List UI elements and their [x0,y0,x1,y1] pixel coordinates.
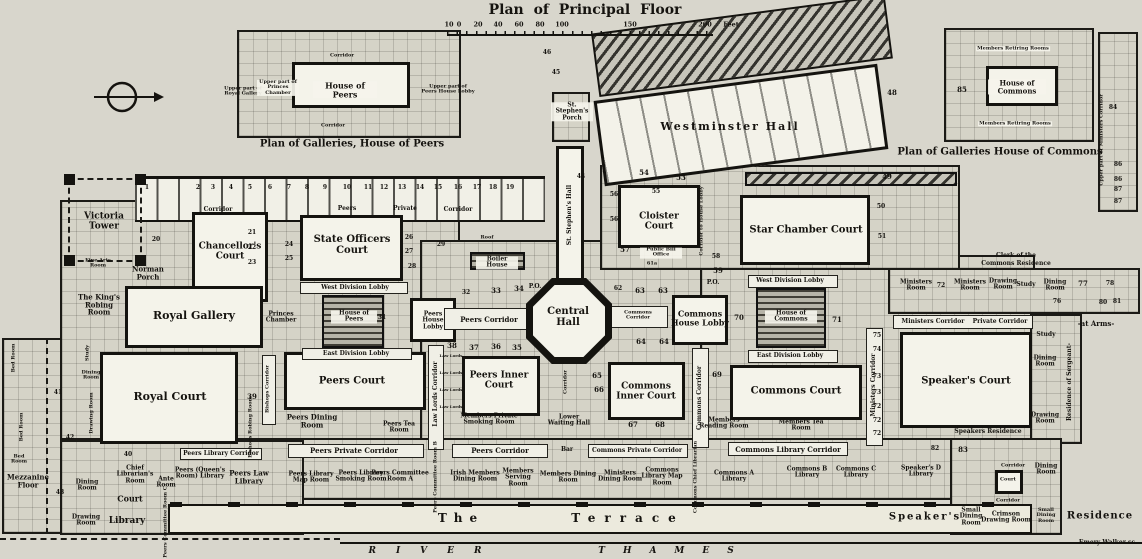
room-label: Members Tea Room [776,420,826,433]
room-label: 6 [268,185,272,191]
room-label: 41 [54,390,62,396]
terrace-label-the: The [438,511,484,525]
room-label: Dining Room [1031,464,1061,477]
room-label: 10 [343,185,351,191]
room-label: Members Serving Room [495,468,541,487]
room-label: 64 [636,338,646,346]
room-label: 87 [1114,187,1122,193]
room-label: Irish Members Dining Room [449,471,501,484]
room-label: Peers Library Corridor [183,451,259,457]
room-label: Private Corridor [973,319,1028,325]
scale-tick-label: 40 [493,21,502,28]
room-label: Court [117,495,142,504]
room-label: Commons B Library [778,467,836,480]
room-label: St. Stephen's Porch [551,102,593,121]
room-label: Upper part of Peers House Lobby [421,85,475,96]
room-label: 17 [473,185,481,191]
room-label: 11 [364,185,372,191]
room-label: 13 [398,185,406,191]
room-label: 56 [610,192,618,198]
room-label: Dining Room [1038,280,1072,293]
room-label: 2 [196,185,200,191]
room-label: Mezzanine Floor [4,473,52,488]
room-label: 81 [1113,299,1121,305]
room-label: Corridor to House Lobby [699,186,704,255]
room-label: 31 [378,315,386,321]
room-label: Corridor [444,207,473,213]
room-label: Peers House Lobby [413,311,453,330]
scale-tick-label: Feet [723,21,739,28]
room-label: Commons A Library [705,471,763,484]
room-label: 78 [1106,281,1114,287]
room-label: Commons Private Corridor [592,448,682,454]
river-wall-line [340,542,1142,544]
room-label: Corridor [996,498,1020,503]
room-label: 63 [658,287,668,295]
room-label: Dining Room [1028,356,1062,369]
terrace-label-terrace: Terrace [571,511,685,525]
room-label: Peers Private Corridor [310,447,398,455]
room-label: 44 [577,174,585,180]
room-label: 70 [734,314,744,322]
room-label: 72 [937,283,945,289]
room-label: 21 [248,230,256,236]
room-label: Corridor [1001,463,1025,468]
room-label: Commons Chief Librarian [693,441,698,513]
room-label: 5 [248,185,252,191]
room-label: 74 [873,347,881,353]
room-label: 40 [124,452,132,458]
room-label: Court [1000,477,1016,482]
room-label: Commons Corridor [618,311,658,322]
room-label: West Division Lobby [756,278,824,284]
room-label: Emery Walker sc. [1079,540,1137,546]
room-label: 38 [447,342,457,350]
room-label: 53 [676,174,686,182]
room-label: Peers Corridor [460,316,518,324]
room-label: Peers Law Library [219,469,279,484]
room-label: 25 [285,256,293,262]
room-label: 67 [628,421,638,429]
room-label: Star Chamber Court [749,226,862,237]
room-label: Corridor [204,207,233,213]
room-label: Ministers Corridor [871,354,877,417]
room-label: Commons Library Corridor [735,446,841,454]
room-label: Speaker's D Library [892,466,950,479]
room-label: 71 [832,316,842,324]
floor-plan-canvas: Plan of Principal Floor Plan of Gallerie… [0,0,1142,559]
room-label: Upper part of Ministers Corridor [1099,94,1104,186]
room-label: Study [85,345,90,361]
room-label: 14 [416,185,424,191]
room-label: House of Commons [988,79,1046,94]
room-label: 76 [1053,299,1061,305]
room-label: 1 [145,185,149,191]
room-label: 87 [1114,199,1122,205]
scale-tick-label: 10 [444,21,453,28]
room-label: 56 [610,217,618,223]
room-label: Norman Porch [127,265,169,280]
room-label: 69 [712,371,722,379]
room-label: 48 [887,89,897,97]
room-label: Study [1036,332,1055,338]
room-label: 68 [655,421,665,429]
room-label: Central Hall [542,307,594,329]
scale-tick-label: 20 [473,21,482,28]
room-label: Princes Chamber [261,312,301,325]
room-label: 58 [712,254,720,260]
room-label: Crimson Drawing Room [980,512,1032,525]
inset-peers-caption: Plan of Galleries, House of Peers [260,139,444,150]
scale-bar [447,31,713,36]
room-label: Bishops Corridor [265,365,270,413]
room-label: 28 [408,264,416,270]
room-label: Clerk of the [996,253,1036,259]
room-label: 43 [56,490,64,496]
room-label: 32 [462,290,470,296]
room-label: Small Dining Room [1028,508,1064,524]
room-label: Members Retiring Rooms [978,121,1052,126]
room-label: 37 [469,344,479,352]
room-label: 64 [659,338,669,346]
room-label: 42 [66,435,74,441]
room-label: The King's Robing Room [76,294,122,317]
room-label: 65 [592,372,602,380]
room-label: 57 [620,246,630,254]
room-label: Peers Inner Court [464,371,534,390]
river-label-river: RIVER [368,546,501,556]
room-label: East Division Lobby [757,353,823,359]
room-label: Corridor [563,370,568,394]
room-label: Upper part of Princes Chamber [257,80,299,96]
scale-tick-label: 80 [535,21,544,28]
room-label: 26 [405,235,413,241]
room-label: 49 [882,173,892,181]
room-label: 62 [614,286,622,292]
tower-corner [64,255,75,266]
room-label: West Division Lobby [321,285,389,291]
room-label: St. Stephen's Hall [567,185,573,245]
room-label: Peers Committee Room A [371,471,429,484]
room-label: Royal Gallery [153,310,235,322]
room-label: Bishops Robing Room [248,396,253,458]
room-label: 18 [489,185,497,191]
room-label: Private [393,206,417,212]
room-label: P.O. [707,280,720,286]
room-label: Lower Waiting Hall [547,415,591,428]
room-label: Peers Court [319,377,385,388]
room-label: Law Lords [438,388,464,392]
room-label: Commons House Lobby [671,309,729,326]
room-label: Drawing Room [66,515,106,528]
room-label: Victoria Tower [74,212,134,231]
room-label: 16 [454,185,462,191]
scale-tick-label: 100 [555,21,569,28]
room-label: Speaker's Court [921,377,1011,388]
room-label: Members Dining Room [538,472,598,485]
shore-dashed-line [0,538,340,540]
room-label: Drawing Room [1025,413,1065,426]
room-label: 46 [543,50,551,56]
room-label: 80 [1099,300,1107,306]
room-label: House of Peers [313,81,377,98]
room-label: Peers Tea Room [375,422,423,435]
room-label: 4 [229,185,233,191]
room-label: 12 [380,185,388,191]
room-label: Members Retiring Rooms [976,46,1050,51]
room-label: Bar [561,447,573,453]
room-label: 50 [877,204,885,210]
room-label: Members Private Smoking Room [460,414,518,427]
room-label: -at Arms- [1078,320,1114,328]
room-label: Dining Room [70,480,104,493]
room-label: Residence of Sergeant- [1067,343,1073,421]
room-label: Chancellor's Court [194,242,266,261]
room-label: Commons Library Map Room [634,467,690,486]
room-label: State Officers Court [306,235,398,257]
room-label: 19 [506,185,514,191]
room-label: 55 [652,189,660,195]
room-label: 54 [639,169,649,177]
room-label: East Division Lobby [323,351,389,357]
room-label: Ministers Room [894,280,938,293]
room-label: Peers Library Map Room [283,472,339,485]
room-label: Corridor [321,123,345,128]
room-label: 29 [437,242,445,248]
room-label: 86 [1114,177,1122,183]
room-label: Peers [338,206,357,212]
room-label: 75 [873,333,881,339]
room-label: Royal Court [134,391,207,403]
room-label: 27 [405,249,413,255]
room-label: 34 [514,285,524,293]
room-label: 61a [647,261,657,266]
room-label: Peers Committee Room B [433,441,438,513]
room-label: 86 [1114,162,1122,168]
room-label: 83 [958,446,968,454]
room-label: 20 [152,237,160,243]
room-label: 59 [713,267,723,275]
tower-corner [64,174,75,185]
room-label: Fine Arts Room [78,259,118,270]
page-title: Plan of Principal Floor [489,2,682,18]
room-label: Law Lords [438,371,464,375]
room-label: Bed Room [6,455,32,466]
room-label: 7 [287,185,291,191]
room-label: Dining Room [76,371,106,382]
compass-rose [92,72,164,122]
room-label: Bed Room [19,413,24,442]
room-label: 33 [491,287,501,295]
room-label: 51 [878,234,886,240]
room-label: P.O. [529,284,542,290]
room-label: Commons Court [751,387,842,398]
scale-tick-label: 200 [698,21,712,28]
room-label: House of Commons [765,311,817,324]
room-label: 8 [305,185,309,191]
room-label: 84 [1109,105,1117,111]
room-label: Law Lords [438,405,464,409]
room-label: Commons Residence [981,261,1051,267]
room-label: 36 [491,343,501,351]
room-label: Bed Room [11,344,16,373]
room-label: Residence [1067,512,1133,523]
room-label: 3 [211,185,215,191]
room-label: Commons C Library [830,467,882,480]
room-label: Peers Committee Room C [163,486,168,558]
room-label: 15 [434,185,442,191]
cloister-gallery-strip [745,172,957,186]
room-label: Speakers Residence [954,429,1021,435]
room-label: 45 [552,70,560,76]
room-label: Peers Dining Room [286,413,338,428]
room-label: Roof [481,235,494,240]
room-label: 77 [1078,280,1088,288]
scale-tick-label: 0 [457,21,462,28]
room-label: Commons Corridor [697,366,703,430]
room-label: 85 [957,86,967,94]
scale-tick-label: 150 [623,21,637,28]
room-label: House of Peers [331,311,377,324]
scale-tick-label: 60 [514,21,523,28]
room-label: Corridor [330,53,354,58]
room-label: 35 [512,344,522,352]
room-label: Law Lords [438,354,464,358]
room-label: 82 [931,446,939,452]
room-label: Public Bill Office [640,248,682,259]
room-label: Library [109,517,146,527]
room-label: 24 [285,242,293,248]
room-label: 9 [323,185,327,191]
room-label: 66 [594,386,604,394]
river-label-thames: THAMES [598,546,752,556]
room-label: Cloister Court [630,212,688,231]
room-label: Westminster Hall [660,121,799,133]
room-label: Boiler House [476,257,518,270]
room-label: Study [1016,282,1035,288]
mezzanine-divider [46,338,48,534]
room-label: 72 [873,431,881,437]
room-label: Commons Inner Court [616,382,676,401]
room-label: Drawing Room [89,392,94,433]
room-label: Ministers Corridor [902,319,965,325]
room-label: 72 [873,418,881,424]
inset-commons-caption: Plan of Galleries House of Commons [897,147,1102,158]
room-label: Peers Corridor [471,447,529,455]
room-label: 63 [635,287,645,295]
